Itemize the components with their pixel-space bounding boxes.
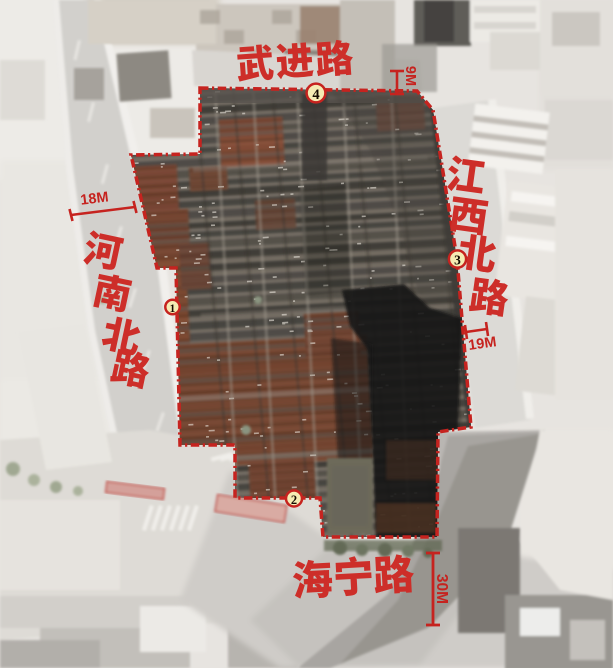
svg-text:2: 2 bbox=[291, 493, 297, 507]
svg-text:4: 4 bbox=[312, 87, 320, 103]
svg-text:30M: 30M bbox=[433, 574, 450, 604]
svg-text:3: 3 bbox=[454, 253, 461, 268]
svg-text:9M: 9M bbox=[402, 66, 418, 86]
svg-text:1: 1 bbox=[170, 303, 176, 315]
svg-text:18M: 18M bbox=[80, 189, 110, 208]
